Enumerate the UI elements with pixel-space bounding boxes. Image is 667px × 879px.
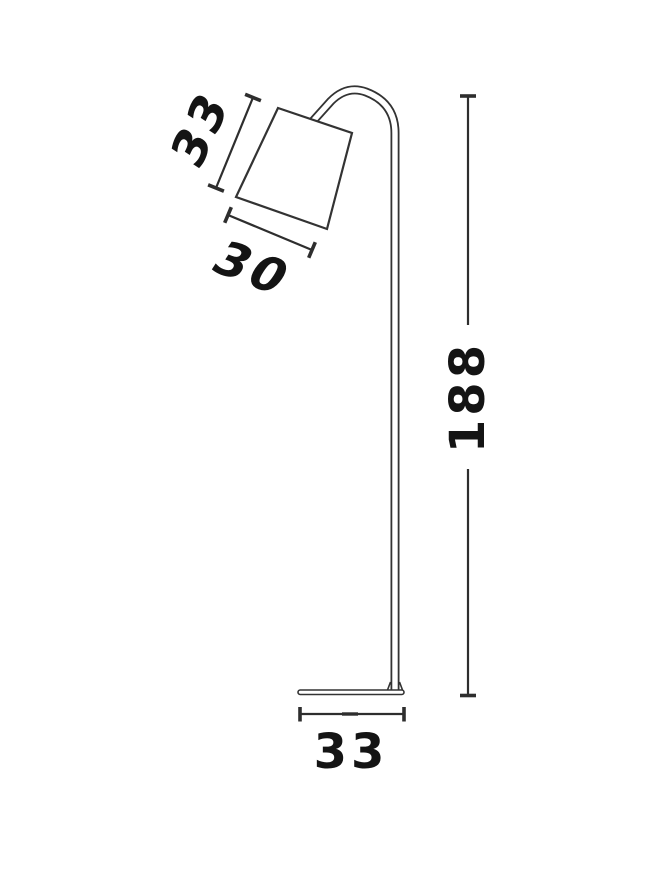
dimension-base-width: 33 — [300, 707, 404, 780]
dimension-total-height: 188 — [440, 96, 496, 696]
dimension-label-shade-width: 30 — [202, 232, 303, 306]
lamp-base-plate — [298, 690, 404, 695]
dimension-label-total-height: 188 — [440, 341, 496, 453]
floor-lamp-dimension-drawing: 33 30 188 3 — [0, 0, 667, 879]
pole-foot-left-edge — [388, 682, 391, 690]
lamp-shade — [236, 108, 352, 229]
dimension-label-shade-height: 33 — [162, 80, 241, 178]
drawing-canvas: 33 30 188 3 — [0, 0, 667, 879]
dimension-shade-width: 30 — [202, 207, 316, 306]
pole-foot-right-edge — [400, 682, 403, 690]
dimension-label-base-width: 33 — [314, 724, 389, 780]
floor-lamp — [236, 90, 404, 695]
